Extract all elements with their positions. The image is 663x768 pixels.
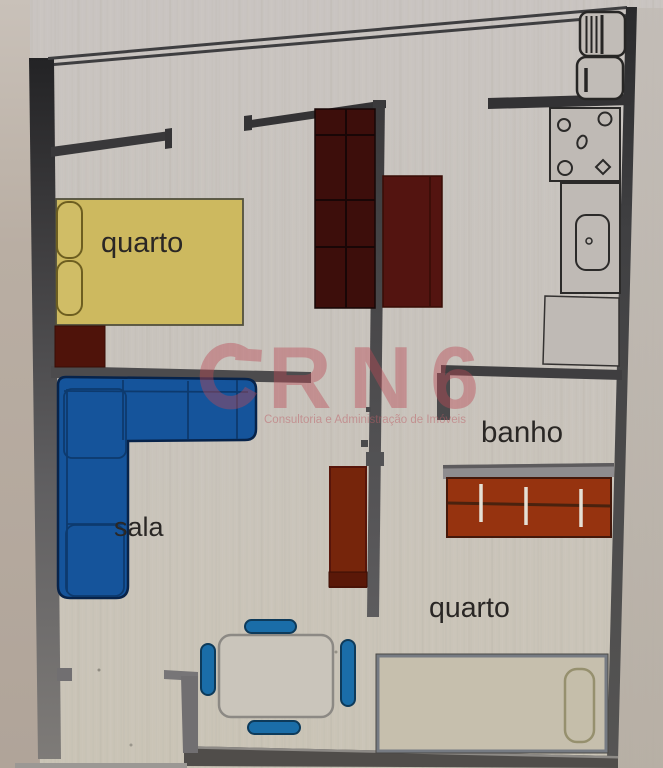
svg-text:Consultoria e Administração de: Consultoria e Administração de Imóveis: [264, 414, 466, 426]
svg-text:quarto: quarto: [101, 227, 183, 259]
svg-text:RN6: RN6: [268, 328, 497, 427]
svg-text:sala: sala: [114, 512, 165, 542]
svg-text:quarto: quarto: [429, 592, 510, 624]
